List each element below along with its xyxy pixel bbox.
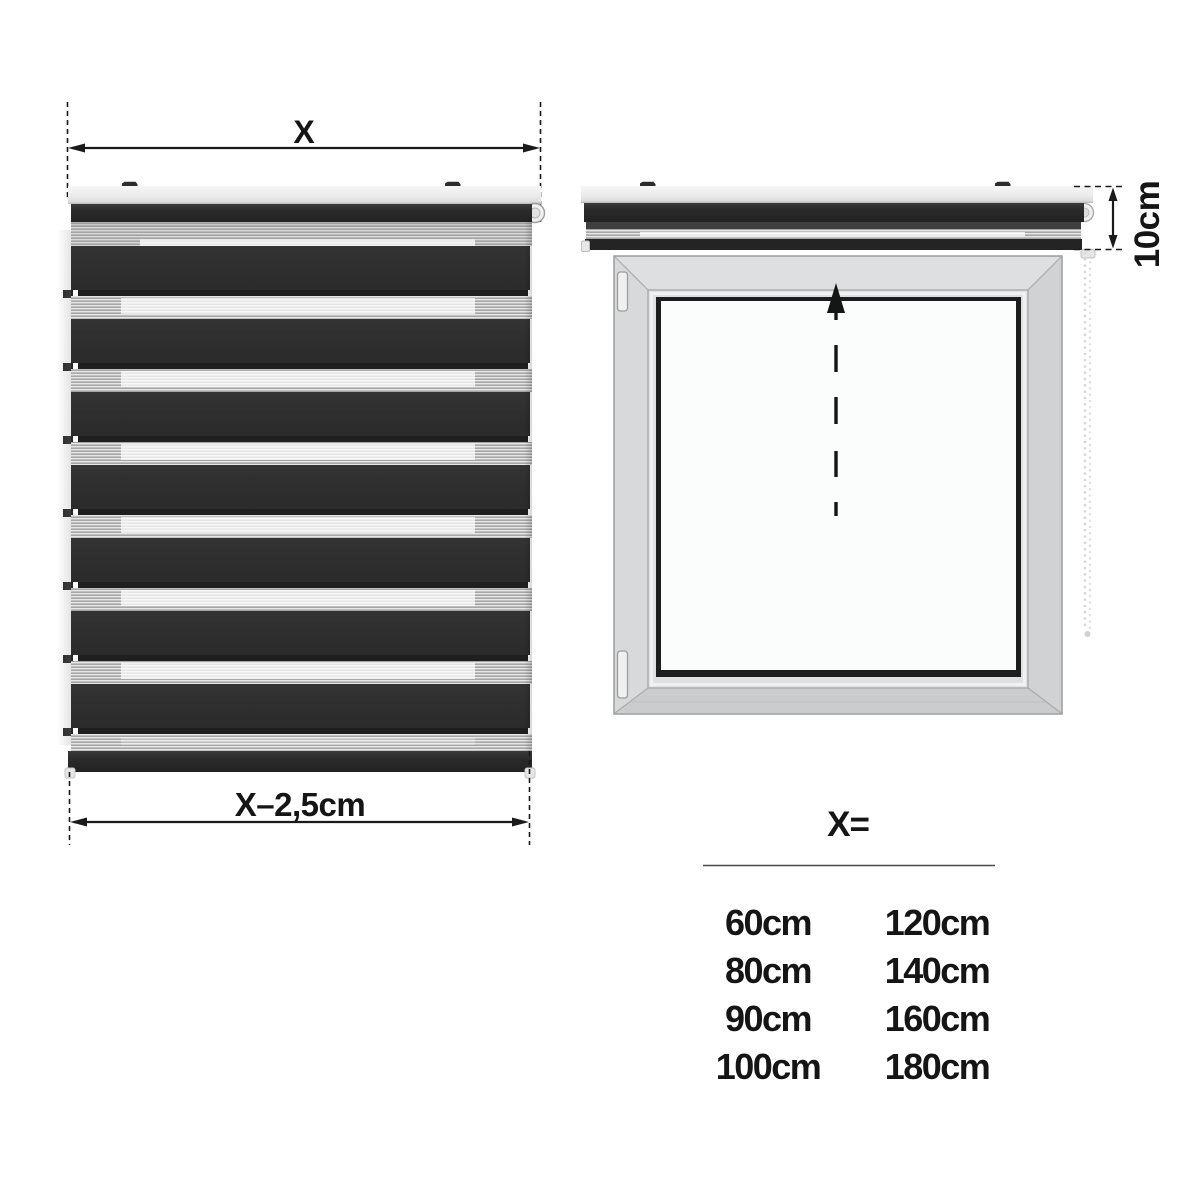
svg-text:120cm: 120cm	[885, 902, 990, 943]
svg-text:90cm: 90cm	[725, 998, 811, 1039]
svg-text:X=: X=	[827, 805, 869, 844]
svg-text:180cm: 180cm	[885, 1046, 990, 1087]
svg-text:100cm: 100cm	[716, 1046, 821, 1087]
svg-text:60cm: 60cm	[725, 902, 811, 943]
svg-text:X: X	[293, 114, 315, 150]
svg-text:160cm: 160cm	[885, 998, 990, 1039]
svg-text:140cm: 140cm	[885, 950, 990, 991]
svg-text:X–2,5cm: X–2,5cm	[235, 786, 365, 823]
svg-text:10cm: 10cm	[1128, 181, 1167, 269]
svg-text:80cm: 80cm	[725, 950, 811, 991]
